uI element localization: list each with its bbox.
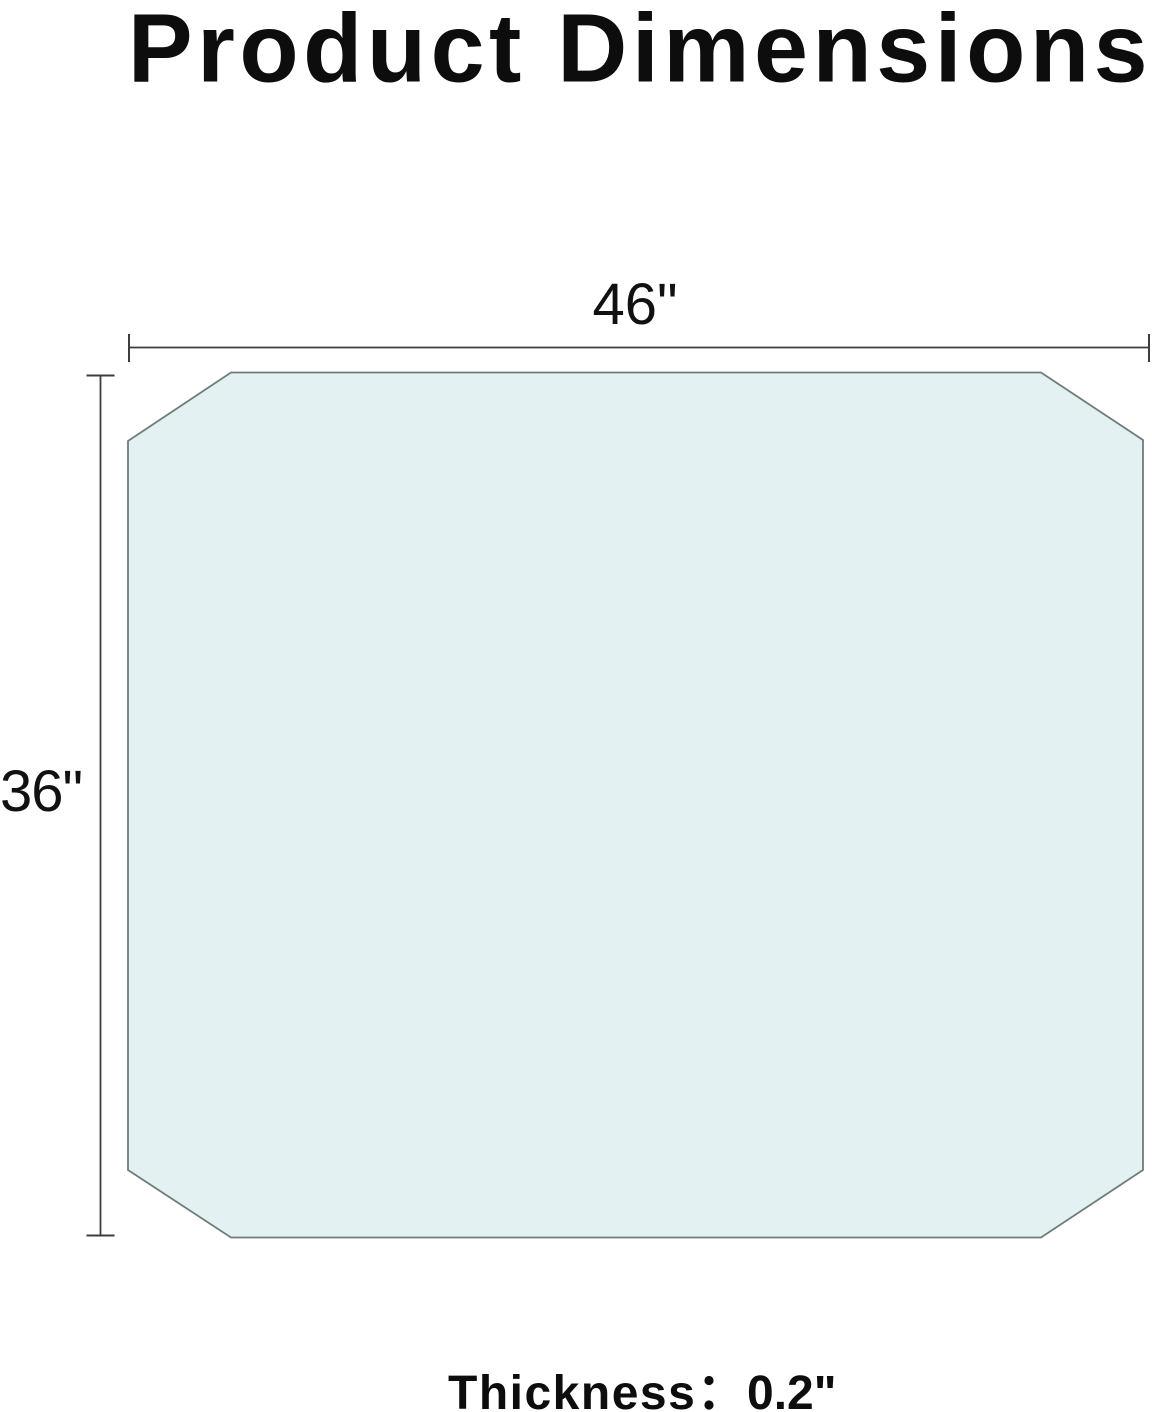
svg-text:0.2": 0.2" <box>747 1367 836 1412</box>
svg-text:Thickness: Thickness <box>448 1367 696 1412</box>
svg-text:46": 46" <box>592 272 677 337</box>
svg-text:36": 36" <box>0 759 82 824</box>
svg-text:Product Dimensions: Product Dimensions <box>128 0 1152 103</box>
